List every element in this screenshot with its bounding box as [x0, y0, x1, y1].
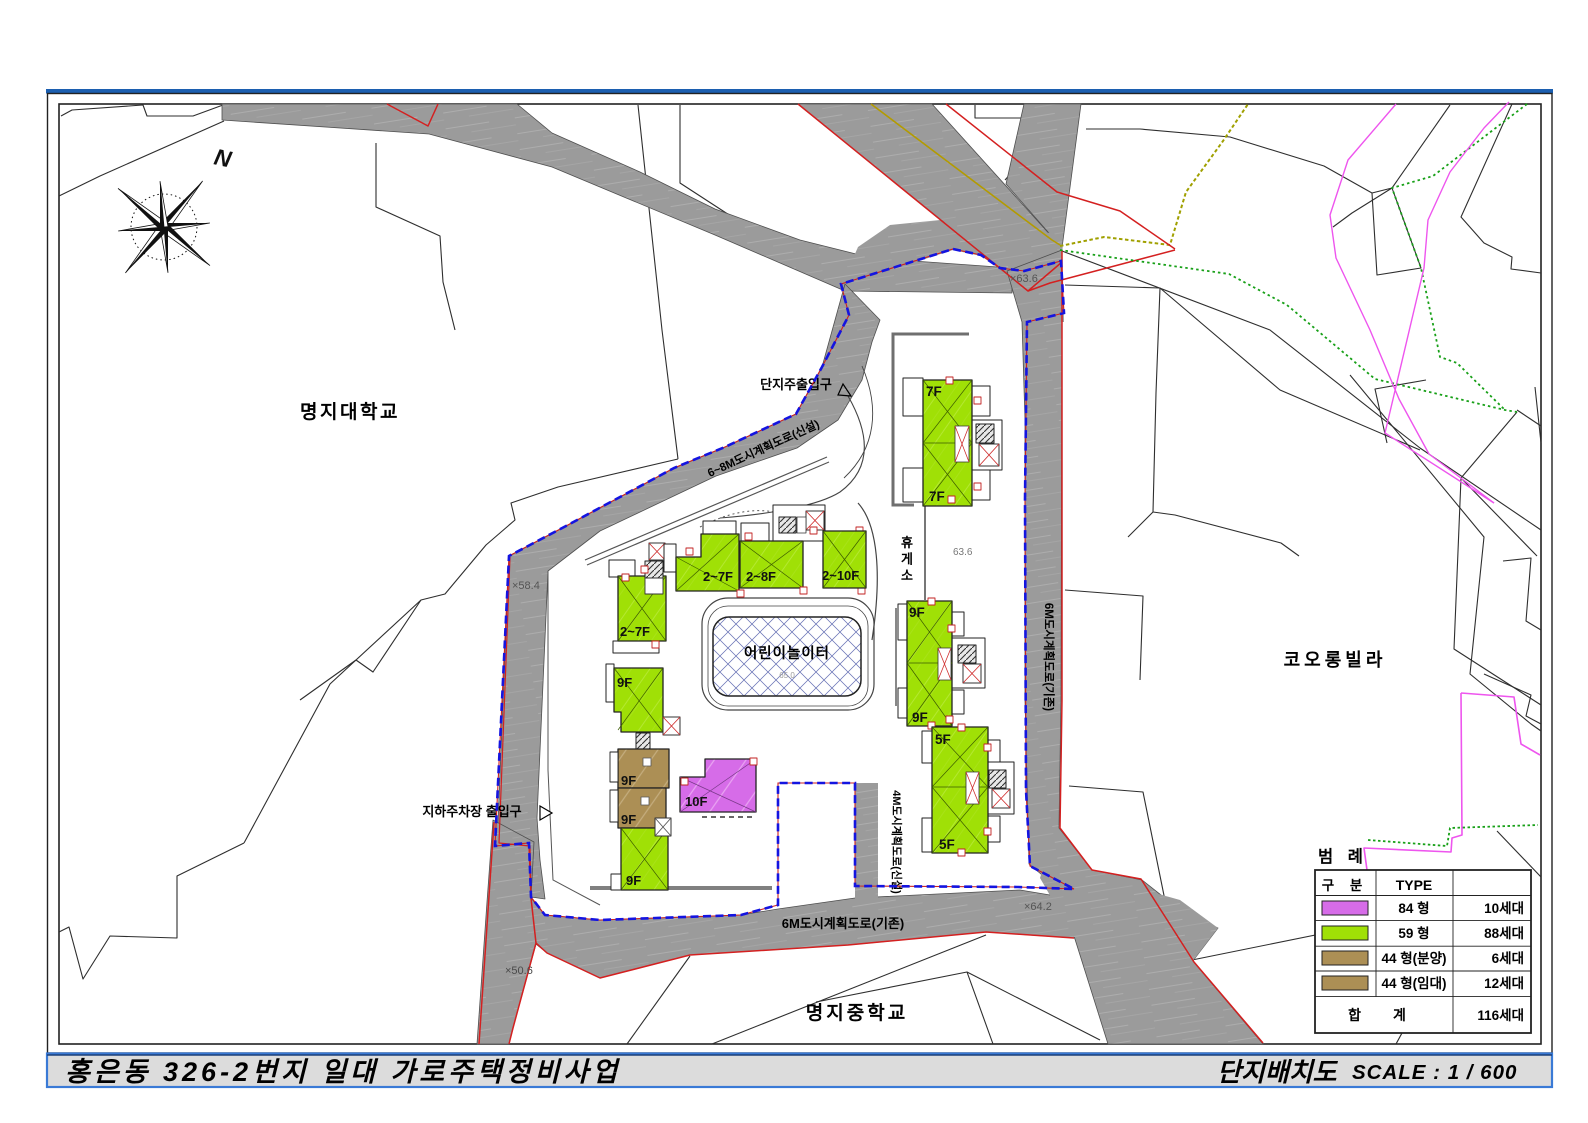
svg-text:6세대: 6세대 — [1492, 951, 1524, 966]
svg-text:단지배치도: 단지배치도 — [1217, 1057, 1339, 1087]
svg-text:9F: 9F — [617, 675, 632, 690]
svg-text:12세대: 12세대 — [1484, 976, 1524, 991]
svg-text:7F: 7F — [929, 489, 945, 504]
svg-text:10F: 10F — [685, 794, 707, 809]
svg-text:59 형: 59 형 — [1398, 925, 1429, 941]
svg-text:63.6: 63.6 — [953, 547, 973, 558]
svg-text:단지주출입구: 단지주출입구 — [760, 377, 832, 392]
svg-text:×50.6: ×50.6 — [505, 965, 533, 977]
svg-text:코오롱빌라: 코오롱빌라 — [1284, 650, 1387, 670]
svg-text:5F: 5F — [935, 732, 951, 747]
svg-text:2~8F: 2~8F — [746, 569, 776, 584]
svg-text:7F: 7F — [926, 384, 942, 399]
svg-text:2~7F: 2~7F — [620, 624, 650, 639]
svg-text:5F: 5F — [939, 837, 955, 852]
svg-text:84 형: 84 형 — [1398, 900, 1429, 916]
svg-text:범 례: 범 례 — [1318, 847, 1368, 866]
svg-text:116세대: 116세대 — [1477, 1008, 1524, 1023]
svg-text:구 분: 구 분 — [1322, 878, 1369, 893]
svg-text:6M도시계획도로(기존): 6M도시계획도로(기존) — [782, 916, 904, 931]
svg-text:2~10F: 2~10F — [822, 568, 859, 583]
svg-text:명지대학교: 명지대학교 — [300, 401, 400, 423]
svg-text:×63.6: ×63.6 — [1010, 273, 1038, 285]
svg-text:6M도시계획도로(기존): 6M도시계획도로(기존) — [1042, 603, 1056, 711]
svg-text:9F: 9F — [626, 873, 641, 888]
svg-text:휴게소: 휴게소 — [901, 535, 913, 583]
svg-text:88세대: 88세대 — [1484, 926, 1524, 941]
svg-text:44 형(임대): 44 형(임대) — [1381, 975, 1446, 991]
svg-text:×58.4: ×58.4 — [512, 580, 540, 592]
svg-text:홍은동 326-2번지 일대 가로주택정비사업: 홍은동 326-2번지 일대 가로주택정비사업 — [65, 1057, 621, 1087]
svg-text:10세대: 10세대 — [1484, 901, 1524, 916]
svg-text:어린이놀이터: 어린이놀이터 — [744, 644, 830, 662]
svg-text:지하주차장 출입구: 지하주차장 출입구 — [422, 804, 521, 819]
svg-text:×64.2: ×64.2 — [1024, 901, 1052, 913]
svg-text:9F: 9F — [621, 812, 636, 827]
svg-text:65.0: 65.0 — [779, 671, 795, 680]
svg-text:44 형(분양): 44 형(분양) — [1381, 950, 1446, 966]
svg-text:9F: 9F — [909, 605, 925, 620]
svg-text:명지중학교: 명지중학교 — [806, 1002, 908, 1024]
svg-text:합 계: 합 계 — [1348, 1007, 1420, 1023]
svg-text:SCALE : 1 / 600: SCALE : 1 / 600 — [1352, 1061, 1517, 1084]
svg-text:4M도시계획도로(신설): 4M도시계획도로(신설) — [890, 790, 904, 894]
svg-text:9F: 9F — [912, 710, 928, 725]
svg-text:2~7F: 2~7F — [703, 569, 733, 584]
svg-text:9F: 9F — [621, 773, 636, 788]
svg-text:TYPE: TYPE — [1396, 877, 1433, 893]
